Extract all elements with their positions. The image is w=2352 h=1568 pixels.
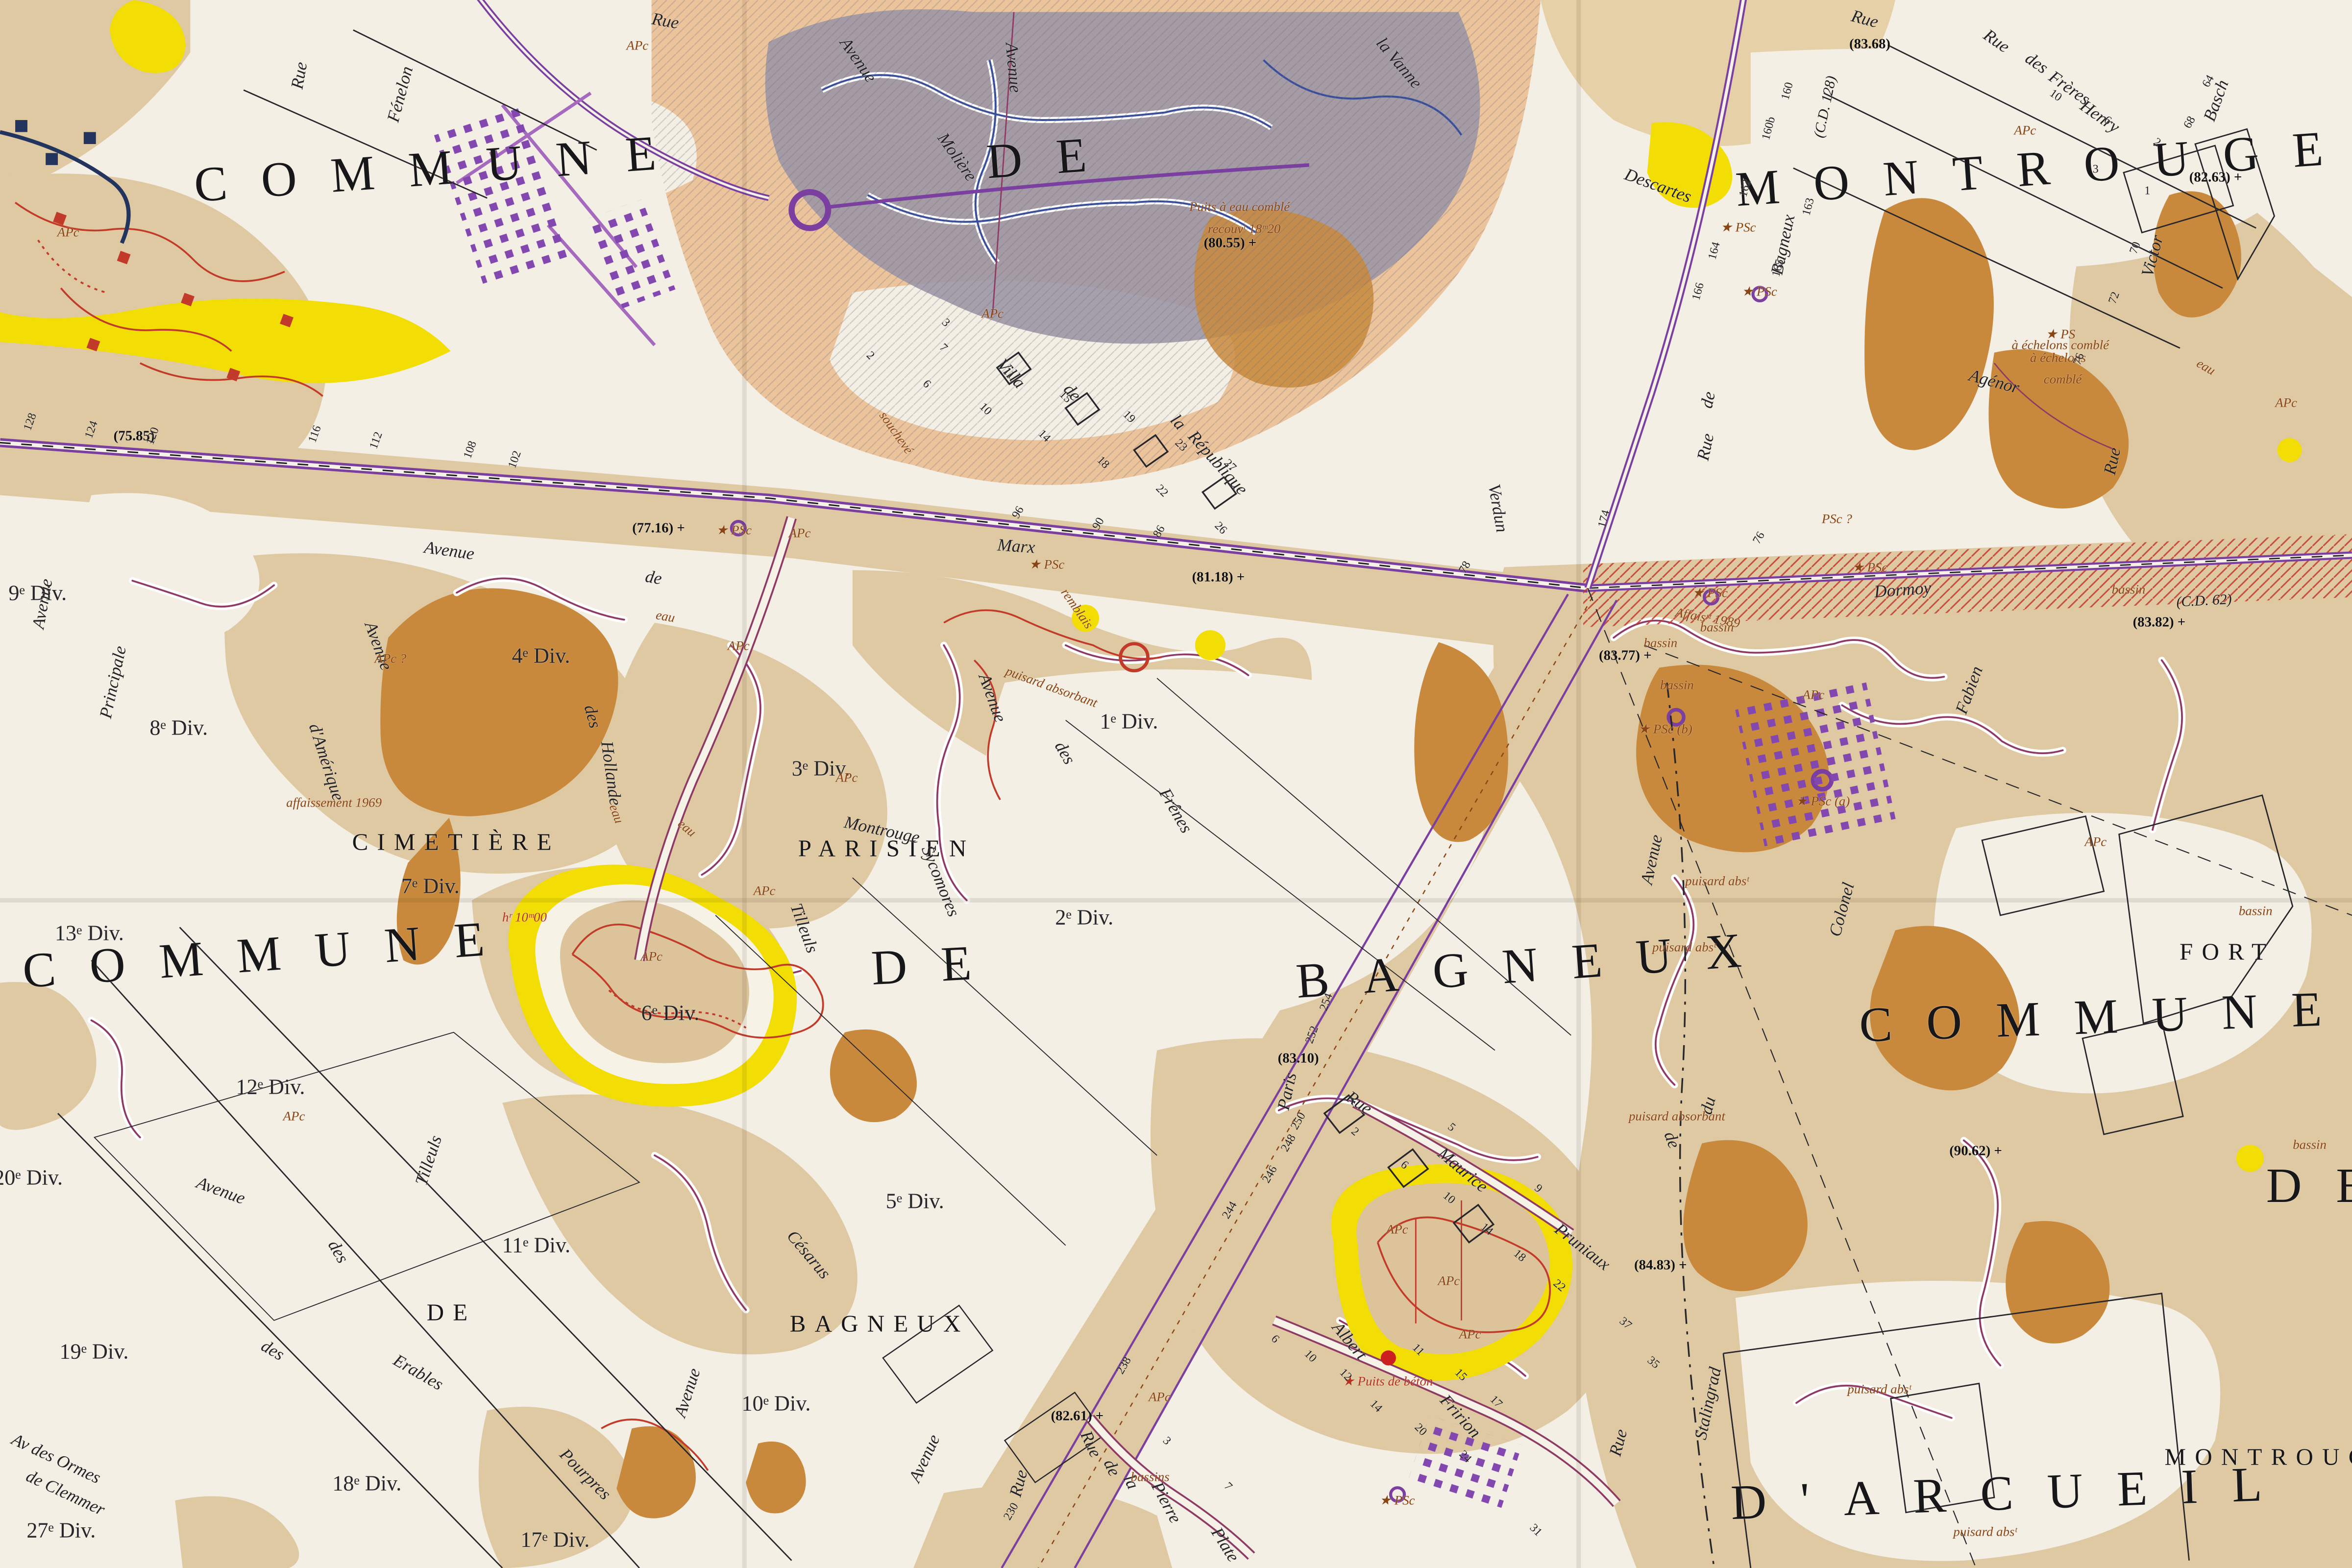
map-label: APc — [2275, 395, 2297, 411]
map-label: 7 — [936, 342, 950, 355]
map-label: Verdun — [1484, 482, 1513, 534]
map-label: 15 — [1452, 1366, 1470, 1384]
map-label: 244 — [1220, 1200, 1240, 1222]
map-label: 246 — [1260, 1163, 1280, 1185]
map-label: PSc ? — [1822, 512, 1852, 527]
map-label: Avenue — [905, 1431, 944, 1486]
map-label: de — [1660, 1128, 1685, 1151]
map-label: 11ᵉ Div. — [502, 1232, 570, 1257]
map-label: APc — [1459, 1327, 1481, 1342]
map-label: Marx — [997, 534, 1036, 557]
map-label: DE — [427, 1298, 477, 1326]
map-label: 19ᵉ Div. — [60, 1339, 129, 1364]
map-label: APc — [728, 638, 750, 654]
map-label: (81.18) + — [1192, 569, 1245, 585]
map-label: ★ PSc — [1379, 1493, 1415, 1508]
map-label: eau — [675, 816, 699, 840]
map-label: 4ᵉ Div. — [512, 643, 570, 668]
map-label: 230 — [1001, 1500, 1021, 1522]
map-label: Frênes — [1155, 784, 1197, 836]
map-label: Rue — [2099, 445, 2125, 476]
map-label: Fénelon — [383, 64, 417, 124]
map-label: COMMUNE — [193, 122, 692, 213]
map-label: Stalingrad — [1690, 1365, 1725, 1441]
map-label: ★ PSc — [1852, 560, 1888, 575]
map-label: puisard absᵗ — [1847, 1382, 1911, 1397]
map-label: Avenue — [1001, 42, 1026, 94]
map-label: d'Amérique — [305, 721, 349, 803]
map-label: des — [1051, 737, 1080, 768]
map-label: ★ PSc — [1720, 220, 1756, 235]
map-label: ★ Puits de béton — [1343, 1374, 1433, 1389]
map-label: APc — [2084, 834, 2107, 850]
map-label: Pruniaux — [1551, 1219, 1615, 1274]
map-label: 20ᵉ Div. — [0, 1165, 63, 1190]
map-label: (90.62) + — [1949, 1143, 2002, 1159]
map-label: Erables — [390, 1349, 447, 1395]
map-label: Fabien — [1951, 663, 1987, 717]
map-label: Victor — [2137, 233, 2168, 279]
map-label: Rue — [1076, 1427, 1106, 1461]
map-label: 102 — [506, 449, 524, 470]
map-label: souchevé — [876, 409, 916, 457]
map-label: 5 — [1445, 1121, 1458, 1134]
map-label: Rue — [1605, 1427, 1632, 1458]
map-label: ★ PSc (a) — [1796, 794, 1850, 809]
map-label: Rue — [1980, 24, 2014, 57]
map-label: 10 — [977, 400, 994, 418]
map-label: (83.82) + — [2133, 614, 2186, 631]
map-label: 22 — [1551, 1277, 1568, 1295]
map-label: 9 — [1532, 1181, 1545, 1195]
map-label: 128 — [22, 411, 40, 432]
map-label: Rue — [1849, 5, 1881, 32]
map-label: Agénor — [1967, 365, 2022, 398]
map-label: APc — [981, 306, 1004, 321]
map-label: Colonel — [1825, 880, 1859, 939]
map-label: remblais — [1058, 586, 1097, 632]
map-label: CIMETIÈRE — [352, 828, 561, 856]
map-label: APc — [1438, 1274, 1460, 1289]
map-label: (83.10) — [1278, 1051, 1319, 1067]
map-label: puisard absᵗ — [1953, 1524, 2017, 1540]
map-label: Avenue — [194, 1172, 248, 1209]
map-label: 3 — [1160, 1434, 1174, 1448]
map-label: (82.63) + — [2189, 169, 2242, 185]
map-label: 76 — [1751, 529, 1768, 546]
map-label: 10 — [1440, 1189, 1458, 1207]
map-label: puisard absorbant — [1004, 663, 1100, 710]
map-label: bassin — [1643, 636, 1677, 651]
map-label: Rue — [286, 60, 311, 91]
map-label: 112 — [367, 430, 385, 451]
map-label: de — [644, 565, 663, 588]
map-label: 248 — [1279, 1132, 1299, 1154]
map-label: DE — [870, 932, 1007, 996]
map-label: eau — [2194, 356, 2218, 378]
map-label: 18 — [1511, 1247, 1528, 1265]
map-label: 20 — [1412, 1421, 1429, 1439]
map-label: 18 — [1094, 454, 1112, 471]
map-label: 18ᵉ Div. — [332, 1471, 401, 1496]
map-label: bassin — [2239, 904, 2273, 919]
map-label: 252 — [1303, 1024, 1322, 1045]
map-label: 13ᵉ Div. — [55, 921, 124, 946]
map-label: 3 — [2093, 163, 2099, 176]
map-label: 1 — [2144, 185, 2150, 198]
map-label: des — [324, 1236, 353, 1267]
map-label: 160b — [1759, 116, 1778, 142]
map-label: APc — [640, 949, 662, 964]
map-label: 72 — [2106, 290, 2123, 306]
map-label: 10ᵉ Div. — [742, 1391, 811, 1416]
map-label: COMMUNE — [1858, 979, 2352, 1053]
map-label: bassin — [1660, 678, 1694, 693]
map-label: Principale — [95, 644, 130, 720]
map-label: DE — [2266, 1157, 2352, 1214]
map-label: Pourpres — [556, 1444, 615, 1504]
map-label: DE — [985, 124, 1123, 190]
map-label: 3 — [939, 316, 953, 330]
map-label: Tilleuls — [786, 901, 823, 956]
map-label: FORT — [2180, 938, 2275, 966]
map-label: bassins — [1131, 1470, 1170, 1485]
map-label: Molière — [933, 128, 981, 185]
map-label: 14 — [1478, 1221, 1495, 1238]
map-label: Avenue — [974, 671, 1011, 725]
map-label: 124 — [82, 419, 101, 440]
map-label: 250 — [1288, 1110, 1308, 1132]
map-label: BAGNEUX — [790, 1309, 970, 1337]
map-label: Descartes — [1622, 164, 1694, 207]
map-label: des — [580, 703, 606, 731]
map-label: 86 — [1151, 523, 1168, 540]
quarry-map-canvas[interactable]: {"":""} — [0, 0, 2352, 1568]
map-label: recouvᵗ 18ᵐ20 — [1208, 221, 1280, 237]
map-label: 37 — [1617, 1315, 1634, 1332]
map-label: Avenue — [423, 537, 475, 564]
map-label: puisard absᵗ — [1652, 939, 1716, 955]
map-label: 6 — [1268, 1332, 1282, 1346]
map-label: 8ᵉ Div. — [149, 715, 208, 740]
map-label: APc — [57, 224, 79, 240]
map-label: 5ᵉ Div. — [886, 1189, 944, 1214]
map-label: de — [1696, 390, 1719, 410]
map-label: Plate — [1207, 1523, 1244, 1566]
map-label: BAGNEUX — [1295, 919, 1778, 1009]
map-label: Rue — [1343, 1086, 1376, 1119]
map-label: 2 — [863, 349, 877, 363]
map-label: 17ᵉ Div. — [520, 1527, 589, 1552]
map-label: Henry — [2077, 95, 2124, 137]
map-label: Tilleuls — [410, 1133, 445, 1188]
map-label: 6ᵉ Div. — [641, 1001, 700, 1026]
map-label: Albert — [1328, 1317, 1372, 1364]
map-label: ★ PSc — [1692, 585, 1728, 600]
map-label: des — [258, 1335, 288, 1365]
map-label: (C.D. 128) — [1811, 74, 1840, 139]
map-label: Pierre — [1147, 1478, 1186, 1526]
map-label: APc — [1386, 1222, 1408, 1237]
map-label: APc — [2014, 122, 2036, 138]
map-label: puisard absᵗ — [1685, 874, 1749, 889]
map-label: (83.68) — [1849, 36, 1890, 52]
map-label: puisard absorbant — [1629, 1109, 1725, 1124]
map-label: 116 — [306, 424, 324, 444]
map-label: eau — [655, 607, 677, 625]
map-label: des — [2021, 48, 2052, 78]
map-label: (C.D. 62) — [2176, 591, 2232, 611]
map-label: 12ᵉ Div. — [236, 1074, 305, 1099]
map-labels-layer: COMMUNEDEMONTROUGECOMMUNEDEBAGNEUXCOMMUN… — [0, 0, 2352, 1568]
map-label: ★ PSc — [1741, 284, 1777, 299]
map-label: Paris — [1273, 1071, 1300, 1112]
map-label: 160 — [1779, 81, 1796, 101]
map-label: 24 — [1456, 1448, 1474, 1466]
map-label: Avenue — [669, 1365, 705, 1420]
map-label: 6 — [920, 377, 933, 391]
map-label: 35 — [1645, 1354, 1663, 1372]
map-label: Dormoy — [1874, 577, 1932, 602]
map-label: 174 — [1595, 509, 1613, 529]
map-label: 6 — [1397, 1158, 1411, 1172]
map-label: Maurice — [1434, 1143, 1492, 1197]
map-label: Césarus — [783, 1226, 835, 1283]
map-label: bassin — [2293, 1137, 2327, 1152]
map-label: (82.61) + — [1051, 1408, 1104, 1424]
map-label: la Vanne — [1372, 33, 1426, 92]
map-label: République — [1184, 426, 1252, 499]
map-label: Avenue — [1636, 833, 1666, 886]
map-label: 27ᵉ Div. — [26, 1518, 96, 1543]
map-label: APc ? — [374, 651, 406, 666]
map-label: MONTROUGE — [2165, 1443, 2352, 1470]
map-label: 96 — [1010, 504, 1027, 521]
map-label: ★ PSc — [1029, 557, 1065, 572]
map-label: APc — [283, 1109, 305, 1124]
map-label: (80.55) + — [1204, 235, 1257, 251]
map-label: 19 — [1120, 408, 1138, 426]
map-label: 164 — [1706, 241, 1723, 261]
map-label: hʳ 10ᵐ00 — [502, 910, 547, 925]
map-label: 7 — [1221, 1480, 1235, 1494]
map-label: Rue — [1692, 432, 1718, 463]
map-label: la — [1166, 410, 1191, 434]
map-label: 2ᵉ Div. — [1055, 905, 1113, 930]
map-label: de — [1100, 1456, 1125, 1479]
map-label: 108 — [461, 440, 480, 461]
map-label: 11 — [1410, 1341, 1427, 1358]
map-label: 26 — [1212, 519, 1229, 537]
map-label: 10 — [1301, 1347, 1319, 1365]
map-label: 14 — [1035, 427, 1053, 445]
map-label: APc — [626, 38, 648, 53]
map-label: 1ᵉ Div. — [1100, 709, 1158, 734]
map-label: 2 — [1348, 1125, 1362, 1139]
map-label: APc — [836, 770, 858, 785]
map-label: (77.16) + — [632, 520, 685, 537]
map-label: comblé — [2044, 372, 2082, 387]
map-label: 17 — [1487, 1393, 1505, 1411]
map-label: 78 — [1457, 559, 1474, 576]
map-label: Fririon — [1436, 1390, 1485, 1442]
map-label: APc — [1802, 687, 1824, 702]
map-label: Hollande — [597, 739, 626, 807]
map-label: 31 — [1527, 1521, 1544, 1539]
map-label: 166 — [1690, 281, 1707, 302]
map-label: 238 — [1114, 1355, 1134, 1377]
map-label: APc — [754, 883, 776, 898]
map-label: Puits à eau comblé — [1189, 199, 1290, 215]
map-label: affaissement 1969 — [286, 795, 382, 810]
map-label: 70 — [2128, 240, 2144, 256]
map-label: Avenue — [835, 33, 881, 86]
map-label: à échelons comblé — [2012, 338, 2109, 353]
map-label: Rue — [1005, 1468, 1032, 1499]
map-label: APc — [789, 526, 811, 541]
map-label: 90 — [1090, 515, 1107, 532]
map-label: ★ PSc — [716, 522, 752, 538]
map-label: ★ PSc (b) — [1638, 722, 1692, 737]
map-label: Rue — [651, 8, 681, 33]
map-label: 7ᵉ Div. — [401, 874, 460, 899]
map-label: APc — [1149, 1390, 1171, 1405]
map-label: 22 — [1153, 482, 1171, 500]
map-label: 14 — [1367, 1397, 1385, 1415]
map-label: bassin — [2112, 582, 2146, 597]
map-label: (84.83) + — [1634, 1257, 1687, 1274]
